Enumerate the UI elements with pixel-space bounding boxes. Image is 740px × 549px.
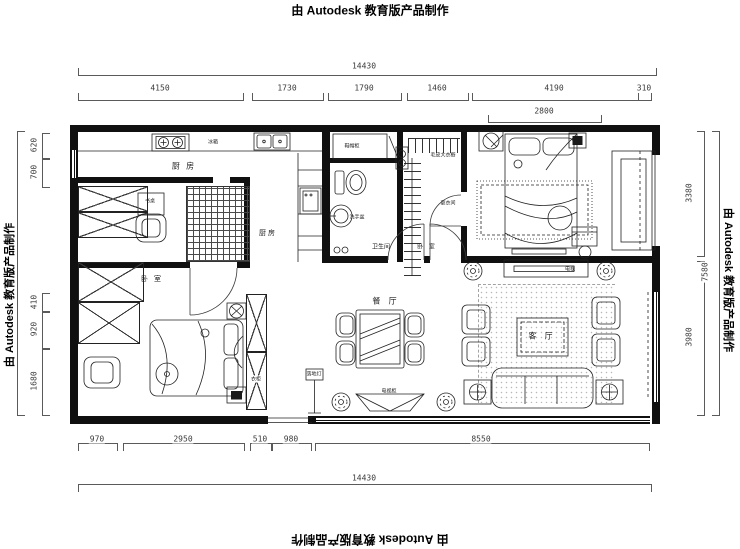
dim-label: 1730	[276, 84, 297, 93]
dim-label: 1680	[30, 370, 39, 391]
dim-line	[315, 443, 650, 451]
dim-label-right-total: 7580	[701, 261, 710, 282]
dining-chairs	[336, 313, 424, 365]
micro-label-wardrobe: 衣柜	[251, 376, 261, 383]
kitchen-sink	[254, 133, 290, 150]
dim-label: 510	[252, 435, 268, 444]
micro-label-floor-lamp: 落地灯	[306, 371, 321, 378]
entry-threshold	[268, 418, 312, 423]
micro-label-desk: 书桌	[145, 198, 155, 205]
stove	[152, 134, 189, 151]
room-label-master-bedroom: 卧 室	[417, 242, 437, 251]
room-label-bathroom: 卫生间	[372, 242, 390, 251]
dim-line	[272, 443, 312, 451]
dim-label: 2950	[172, 435, 193, 444]
toilet	[335, 171, 366, 195]
bay-window	[612, 151, 655, 250]
dim-line	[250, 443, 272, 451]
end-table	[464, 380, 623, 404]
dim-line	[78, 443, 118, 451]
armchair	[136, 214, 166, 242]
dim-label: 4150	[149, 84, 170, 93]
dim-label: 920	[30, 321, 39, 337]
dim-line	[472, 93, 639, 101]
dim-label: 970	[89, 435, 105, 444]
small-bed	[150, 320, 243, 396]
dim-line	[42, 158, 50, 188]
dim-line	[42, 293, 50, 313]
dim-label: 310	[636, 84, 652, 93]
tv-stand	[356, 394, 424, 411]
ac-unit	[227, 303, 246, 319]
room-label-dining: 餐 厅	[372, 296, 399, 307]
ac-unit	[479, 131, 503, 151]
dim-label: 3380	[685, 182, 694, 203]
master-bed	[505, 134, 577, 248]
micro-label-fridge: 冰箱	[208, 139, 218, 146]
dim-label: 620	[30, 137, 39, 153]
dim-label: 4190	[543, 84, 564, 93]
furniture-layer	[0, 0, 740, 549]
armchair	[84, 357, 120, 388]
dim-line	[42, 133, 50, 160]
dim-label: 980	[283, 435, 299, 444]
dim-line	[697, 261, 705, 416]
dim-line	[252, 93, 324, 101]
shoe-cabinet-box	[333, 134, 398, 159]
sofa	[492, 368, 593, 408]
room-label-dressing: 更衣间	[440, 200, 455, 207]
dim-label: 8550	[470, 435, 491, 444]
dim-line-right-total	[712, 131, 720, 416]
dim-line-bottom-total	[78, 484, 652, 492]
dining-table	[356, 310, 404, 368]
dim-label-top-total: 14430	[351, 62, 377, 71]
room-label-washbasin: 洗手盆	[349, 214, 364, 221]
master-rug	[477, 181, 592, 239]
micro-label-tv: 电视	[565, 266, 575, 273]
dim-label: 700	[30, 164, 39, 180]
plant	[332, 262, 615, 411]
dim-label: 1460	[426, 84, 447, 93]
dim-label: 1790	[353, 84, 374, 93]
dim-line	[328, 93, 402, 101]
dim-label-bed-width: 2800	[533, 107, 554, 116]
dim-line	[407, 93, 469, 101]
shelf	[512, 249, 566, 254]
micro-label-tv-stand: 电视柜	[381, 388, 396, 395]
dim-label-bottom-total: 14430	[351, 474, 377, 483]
room-label-kitchen: 厨 房	[172, 161, 196, 172]
dim-line-bed-width	[488, 115, 602, 123]
dim-line	[697, 131, 705, 257]
dim-line	[123, 443, 245, 451]
dim-line	[638, 93, 652, 101]
room-label-shoe-cabinet: 鞋帽柜	[344, 143, 359, 150]
room-label-living: 客 厅	[528, 331, 555, 342]
kitchen-counter	[78, 151, 322, 262]
dim-label: 3980	[685, 326, 694, 347]
floor-drain	[334, 247, 348, 253]
nightstand	[569, 133, 586, 148]
door-arcs	[190, 195, 466, 315]
room-label-small-bedroom: 卧 室	[141, 274, 163, 284]
dim-label: 410	[30, 294, 39, 310]
room-label-kitchen-2: 厨 房	[259, 228, 275, 238]
room-label-wardrobe: 毛皮大衣橱	[430, 152, 455, 159]
dim-line	[42, 348, 50, 416]
tv-cabinet	[504, 260, 588, 277]
dresser	[572, 227, 597, 258]
dim-line	[78, 93, 244, 101]
floorplan-canvas: 由 Autodesk 教育版产品制作 由 Autodesk 教育版产品制作 由 …	[0, 0, 740, 549]
dim-line	[42, 311, 50, 350]
dim-line-left-total	[17, 131, 25, 416]
